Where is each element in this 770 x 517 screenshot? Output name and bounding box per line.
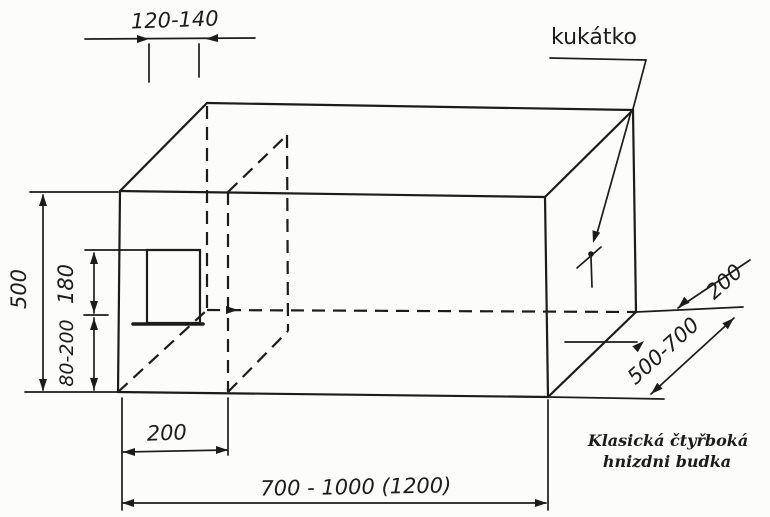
dim-front-compartment-label: 200 bbox=[146, 420, 187, 445]
caption-line-1: Klasická čtyřboká bbox=[587, 431, 748, 450]
arrow-right-icon bbox=[535, 499, 547, 507]
front-left-edge bbox=[118, 191, 120, 392]
ext-back-bottom-right bbox=[636, 307, 743, 312]
partition-pointer-arrow bbox=[226, 306, 238, 314]
arrow-down-left-icon bbox=[678, 297, 690, 308]
peephole-mark-tail bbox=[591, 257, 592, 287]
front-top-edge bbox=[120, 191, 545, 197]
ext-front-bottom-right bbox=[548, 397, 664, 399]
partition-hidden-edges bbox=[226, 135, 288, 392]
partition-bottom-depth bbox=[228, 331, 288, 392]
dim-entrance-width: 120-140 bbox=[85, 6, 255, 82]
peephole-callout: kukátko bbox=[550, 25, 646, 287]
dim-box-height-label: 500 bbox=[7, 269, 31, 309]
peephole-mark-slash bbox=[577, 247, 601, 268]
dim-box-depth-label: 500-700 bbox=[623, 313, 704, 390]
dim-entrance-width-label: 120-140 bbox=[130, 6, 219, 33]
arrow-down-left-icon bbox=[593, 230, 601, 243]
arrow-down-icon bbox=[90, 378, 98, 390]
arrow-down-icon bbox=[90, 301, 98, 313]
dim-entrance-height-label: 180 bbox=[54, 264, 78, 304]
dim-box-length-label: 700 - 1000 (1200) bbox=[260, 473, 451, 500]
arrow-right-icon bbox=[137, 35, 149, 43]
top-left-depth-edge bbox=[120, 103, 207, 191]
partition-back-vertical bbox=[287, 135, 288, 331]
dim-entrance-offset-label: 80-200 bbox=[56, 319, 78, 386]
arrow-up-icon bbox=[90, 318, 98, 330]
peephole-label: kukátko bbox=[551, 25, 637, 50]
partition-top-depth bbox=[228, 135, 287, 192]
arrow-up-icon bbox=[90, 252, 98, 264]
entrance-hole-outline bbox=[147, 250, 200, 323]
arrow-left-icon bbox=[123, 448, 135, 456]
back-bottom-hidden bbox=[207, 310, 636, 312]
nest-box-technical-drawing: 120-140 500 180 80-200 bbox=[0, 0, 770, 517]
entrance-hole bbox=[133, 250, 203, 324]
dim-entrance-width-line bbox=[85, 38, 255, 39]
peephole-leader-line bbox=[550, 58, 646, 109]
dim-entrance-position: 180 80-200 bbox=[54, 250, 147, 390]
top-back-edge bbox=[207, 103, 633, 110]
front-bottom-edge bbox=[118, 392, 548, 397]
drawing-canvas: 120-140 500 180 80-200 bbox=[0, 0, 770, 517]
arrow-down-icon bbox=[39, 379, 47, 391]
arrow-left-icon bbox=[122, 499, 134, 507]
arrow-right-icon bbox=[216, 446, 228, 454]
dim-front-compartment-line bbox=[123, 450, 227, 452]
front-right-edge bbox=[545, 197, 548, 397]
dim-box-length: 700 - 1000 (1200) bbox=[122, 400, 548, 510]
caption: Klasická čtyřboká hnizdni budka bbox=[587, 431, 748, 471]
caption-line-2: hnizdni budka bbox=[603, 452, 731, 471]
back-right-vertical-edge bbox=[633, 110, 636, 312]
dim-front-compartment: 200 bbox=[122, 398, 228, 510]
dim-box-depth: 500-700 200 bbox=[548, 259, 750, 399]
arrow-up-icon bbox=[39, 194, 47, 206]
right-bottom-depth-edge bbox=[548, 312, 636, 397]
